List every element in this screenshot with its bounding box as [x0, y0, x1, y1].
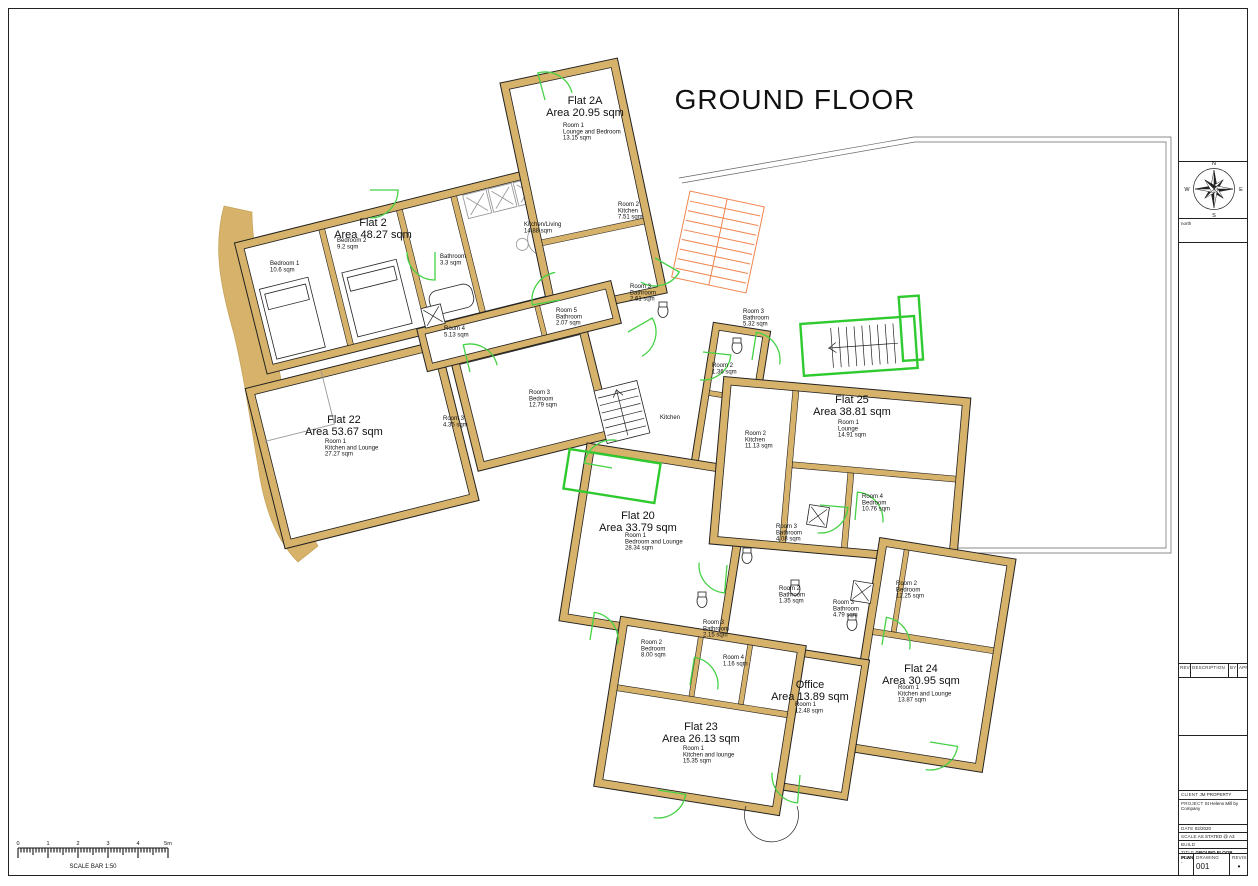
drawing-cell: DRAWING 001	[1194, 854, 1230, 876]
divider	[1179, 242, 1248, 243]
revision-value: •	[1232, 862, 1246, 871]
compass-caption: north	[1181, 221, 1191, 226]
divider	[1179, 218, 1248, 219]
build-label: BUILD	[1181, 842, 1195, 847]
revision-label: REVISION	[1232, 855, 1246, 860]
job-drawing-revision-row: JOB - DRAWING 001 REVISION •	[1179, 853, 1248, 876]
app-col: APP	[1238, 664, 1248, 677]
client-value: JM PROPERTY	[1199, 792, 1231, 797]
by-col: BY	[1229, 664, 1238, 677]
project-row: PROJECT St Helens Mill by Company	[1179, 800, 1248, 812]
scale-row: SCALE AS STATED @ A3	[1179, 833, 1248, 840]
revision-table-header: REV. DESCRIPTION BY APP	[1179, 663, 1248, 678]
drawing-sheet: N E S W 012345m SCALE BAR 1:50 Flat 2Are…	[0, 0, 1258, 886]
divider	[1179, 735, 1248, 736]
drawing-label: DRAWING	[1196, 855, 1227, 860]
divider	[1179, 161, 1248, 162]
build-row: BUILD	[1179, 841, 1248, 848]
description-col: DESCRIPTION	[1191, 664, 1229, 677]
job-cell: JOB -	[1179, 854, 1194, 876]
date-label: DATE	[1181, 826, 1193, 831]
drawing-number: 001	[1196, 862, 1227, 871]
client-label: CLIENT	[1181, 792, 1198, 797]
client-row: CLIENT JM PROPERTY	[1179, 791, 1248, 798]
scale-label: SCALE	[1181, 834, 1197, 839]
drawing-frame	[8, 8, 1248, 876]
scale-value: AS STATED @ A3	[1198, 834, 1235, 839]
title-block: north REV. DESCRIPTION BY APP CLIENT JM …	[1178, 8, 1248, 876]
job-value: -	[1181, 860, 1191, 865]
page-title: GROUND FLOOR	[655, 84, 935, 116]
rev-col: REV.	[1179, 664, 1191, 677]
date-row: DATE 02/2020	[1179, 825, 1248, 832]
revision-cell: REVISION •	[1230, 854, 1248, 876]
date-value: 02/2020	[1195, 826, 1211, 831]
